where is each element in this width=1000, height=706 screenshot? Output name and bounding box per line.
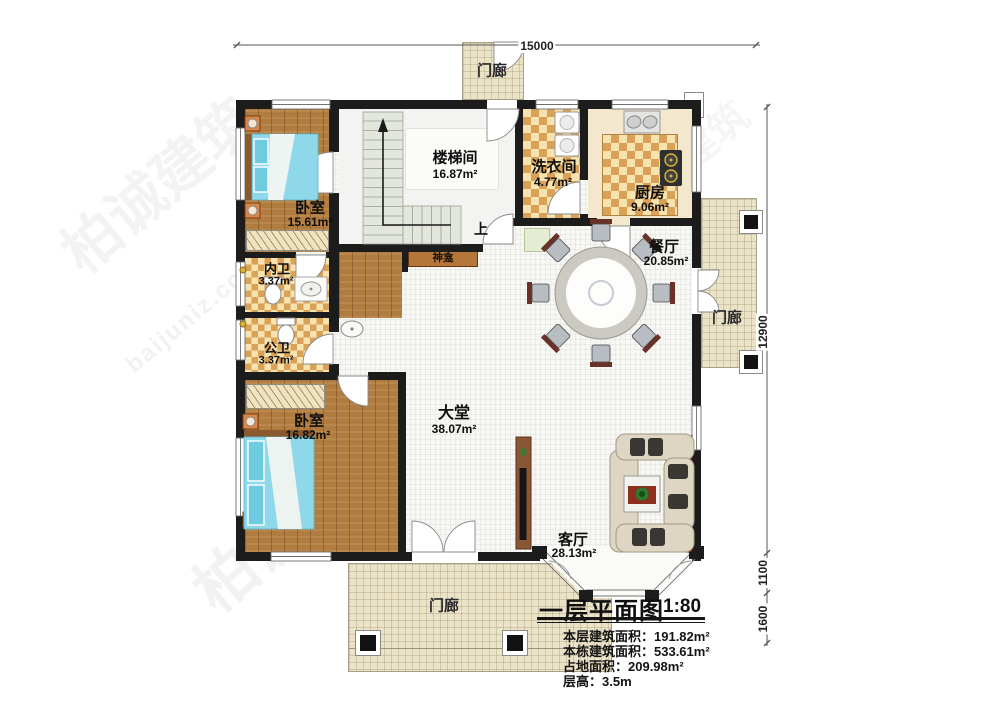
- room-area-bedroom-1: 15.61m²: [288, 216, 333, 228]
- room-label-dining: 餐厅: [649, 240, 679, 255]
- room-area-stairwell: 16.87m²: [433, 168, 478, 180]
- dim-right-bay: 1100: [756, 558, 770, 588]
- room-area-living: 28.13m²: [552, 547, 597, 559]
- plan-scale: 1:80: [663, 596, 701, 618]
- dim-right-main: 12900: [756, 313, 770, 350]
- washing-machines: [555, 112, 579, 156]
- room-area-bath-private: 3.37m²: [259, 277, 294, 288]
- room-area-hall: 38.07m²: [432, 423, 477, 435]
- room-label-laundry: 洗衣间: [531, 160, 576, 175]
- room-label-bedroom-1: 卧室: [295, 201, 325, 216]
- sofa-set: [610, 434, 694, 552]
- title-underline-2: [537, 622, 705, 623]
- plan-title: 一层平面图: [539, 591, 664, 626]
- title-underline: [537, 617, 705, 620]
- room-area-bedroom-2: 16.82m²: [286, 429, 331, 441]
- porch-label-right: 门廊: [712, 307, 742, 328]
- porch-label-top: 门廊: [477, 60, 507, 81]
- room-area-kitchen: 9.06m²: [631, 201, 669, 213]
- room-label-kitchen: 厨房: [635, 186, 665, 201]
- stairs-up-label: 上: [474, 222, 488, 236]
- room-area-laundry: 4.77m²: [534, 176, 572, 188]
- room-label-bedroom-2: 卧室: [294, 414, 324, 429]
- kitchen-fixtures: [624, 111, 682, 186]
- room-label-bath-private: 内卫: [264, 263, 290, 276]
- porch-label-bottom: 门廊: [429, 595, 459, 616]
- shrine-label: 神龛: [433, 253, 454, 264]
- tv-cabinet: [516, 437, 531, 549]
- dim-right-porch: 1600: [756, 604, 770, 635]
- floor-plan: 柏诚建筑 baijuniz.com 柏诚建筑 baijuniz.com 柏诚建筑…: [0, 0, 1000, 706]
- room-label-bath-public: 公卫: [264, 342, 290, 355]
- room-area-dining: 20.85m²: [644, 255, 689, 267]
- room-label-stairwell: 楼梯间: [432, 151, 477, 166]
- dim-top: 15000: [518, 39, 555, 53]
- plan-linework: [0, 0, 1000, 706]
- note-storey-height: 层高：3.5m: [563, 671, 632, 690]
- room-area-bath-public: 3.37m²: [259, 356, 294, 367]
- room-label-hall: 大堂: [438, 406, 470, 422]
